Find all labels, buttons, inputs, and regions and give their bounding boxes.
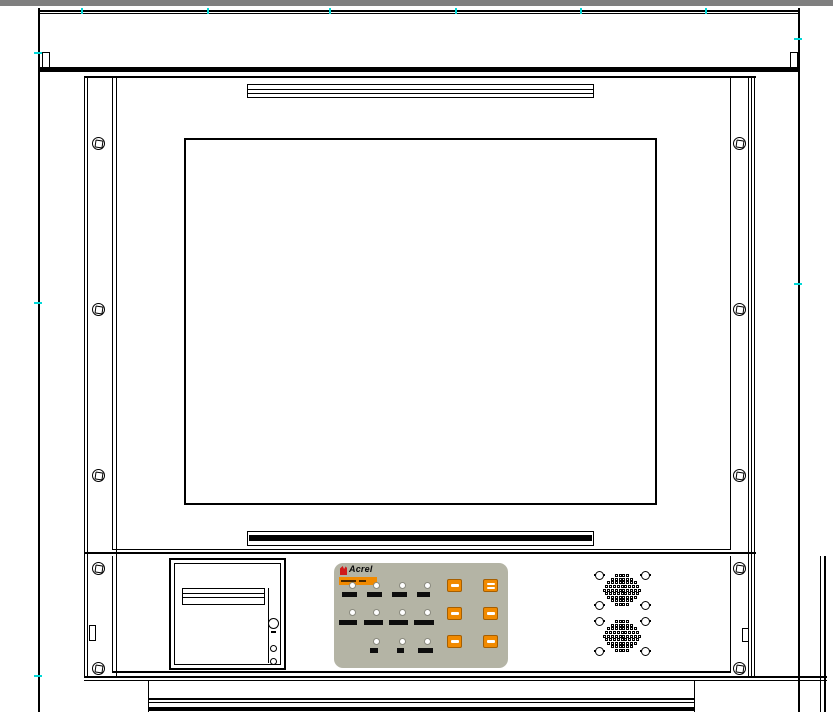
printer-frame <box>174 563 281 665</box>
label-bar <box>339 620 357 625</box>
speaker-hole <box>628 631 631 634</box>
speaker-hole <box>626 574 629 577</box>
brand-logo-text: Acrel <box>349 564 373 575</box>
speaker-hole <box>622 627 625 630</box>
speaker-hole <box>611 627 614 630</box>
speaker-hole <box>619 578 622 581</box>
speaker-hole <box>605 631 608 634</box>
frame-screw <box>92 562 105 575</box>
speaker-hole <box>611 596 614 599</box>
cad-marker-icon <box>34 52 42 54</box>
speaker-hole <box>634 642 637 645</box>
top-vent-strip <box>247 84 594 98</box>
speaker-hole <box>630 635 633 638</box>
speaker-hole <box>619 589 622 592</box>
panel-button[interactable] <box>483 579 498 592</box>
speaker-hole <box>622 620 625 623</box>
speaker-hole <box>607 596 610 599</box>
panel-button[interactable] <box>483 607 498 620</box>
button-dash-icon <box>487 612 495 615</box>
cad-marker-icon <box>34 302 42 304</box>
screen-display <box>184 138 657 505</box>
speaker-hole <box>615 581 618 584</box>
speaker-hole <box>622 635 625 638</box>
speaker-hole <box>615 642 618 645</box>
speaker-screw <box>595 601 604 610</box>
cad-marker-icon <box>580 8 582 14</box>
panel-button[interactable] <box>483 635 498 648</box>
recessed-line <box>149 707 694 711</box>
speaker-hole <box>615 645 618 648</box>
speaker-hole <box>630 627 633 630</box>
speaker-screw <box>641 601 650 610</box>
speaker-hole <box>624 592 627 595</box>
lower-panel: Acrel <box>112 556 731 673</box>
label-bar <box>418 648 433 653</box>
speaker-hole <box>622 645 625 648</box>
model-badge <box>339 577 377 585</box>
top-panel-inner-line <box>40 13 798 14</box>
frame-screw <box>92 662 105 675</box>
speaker-hole <box>617 585 620 588</box>
speaker-hole <box>613 585 616 588</box>
speaker-hole <box>630 589 633 592</box>
speaker-hole <box>626 581 629 584</box>
speaker-hole <box>611 581 614 584</box>
speaker-hole <box>624 585 627 588</box>
speaker-hole <box>605 585 608 588</box>
speaker-hole <box>632 585 635 588</box>
speaker-hole <box>634 635 637 638</box>
right-rail-tab <box>742 628 749 642</box>
printer-led <box>270 658 277 665</box>
speaker-hole <box>619 645 622 648</box>
frame-screw <box>733 662 746 675</box>
speaker-hole <box>607 581 610 584</box>
speaker-hole <box>626 645 629 648</box>
speaker-hole <box>619 635 622 638</box>
speaker-hole <box>621 631 624 634</box>
left-rail-line <box>87 78 88 678</box>
label-bar <box>389 620 408 625</box>
cad-marker-icon <box>207 8 209 14</box>
speaker-hole <box>605 638 608 641</box>
button-dash-icon <box>451 640 459 643</box>
speaker-hole <box>626 589 629 592</box>
speaker-hole <box>611 645 614 648</box>
printer <box>169 558 286 670</box>
indicator-led <box>349 609 356 616</box>
frame-screw <box>733 469 746 482</box>
bottom-band-line <box>84 676 827 678</box>
speaker-hole <box>630 624 633 627</box>
frame-screw <box>92 469 105 482</box>
cad-marker-icon <box>794 38 802 40</box>
speaker-hole <box>632 631 635 634</box>
speaker-hole <box>619 603 622 606</box>
button-dash-icon <box>451 584 459 587</box>
printer-mark <box>271 631 276 633</box>
cabinet-left-edge <box>38 8 40 712</box>
speaker-hole <box>622 603 625 606</box>
speaker-hole <box>603 589 606 592</box>
speaker-hole <box>615 589 618 592</box>
printer-paper-slot <box>182 588 265 605</box>
label-bar <box>342 592 357 597</box>
speaker-hole <box>605 592 608 595</box>
speaker-hole <box>617 592 620 595</box>
speaker-hole <box>615 578 618 581</box>
speaker-hole <box>624 631 627 634</box>
speaker-screw <box>641 647 650 656</box>
speaker-screw <box>595 617 604 626</box>
speaker-hole <box>615 627 618 630</box>
right-side-line <box>820 556 821 712</box>
speaker-hole <box>611 624 614 627</box>
top-panel-right-tab <box>790 52 798 68</box>
speaker-hole <box>621 638 624 641</box>
speaker-hole <box>626 620 629 623</box>
speaker-hole <box>619 596 622 599</box>
top-edge-strip <box>0 0 833 6</box>
speaker-hole <box>626 627 629 630</box>
speaker-hole <box>619 642 622 645</box>
speaker-hole <box>619 620 622 623</box>
bottom-vent-strip <box>247 531 594 546</box>
cad-marker-icon <box>34 675 42 677</box>
speaker-hole <box>636 592 639 595</box>
speaker-hole <box>615 599 618 602</box>
speaker-hole <box>638 635 641 638</box>
speaker-hole <box>628 592 631 595</box>
top-panel-left-tab <box>42 52 50 68</box>
cad-marker-icon <box>81 8 83 14</box>
speaker-hole <box>609 631 612 634</box>
speaker-hole <box>622 578 625 581</box>
label-bar <box>367 592 382 597</box>
label-bar <box>414 620 434 625</box>
speaker-screw <box>641 617 650 626</box>
speaker-screw <box>641 571 650 580</box>
indicator-led <box>399 638 406 645</box>
speaker-hole <box>611 635 614 638</box>
lower-recessed-panel <box>148 681 695 712</box>
speaker-hole <box>613 631 616 634</box>
speaker-hole <box>615 624 618 627</box>
indicator-led <box>424 609 431 616</box>
speaker-hole <box>622 596 625 599</box>
speaker-hole <box>619 574 622 577</box>
cad-marker-icon <box>329 8 331 14</box>
speaker-hole <box>634 596 637 599</box>
speaker-hole <box>621 592 624 595</box>
speaker-hole <box>622 589 625 592</box>
speaker-hole <box>609 592 612 595</box>
speaker-hole <box>621 585 624 588</box>
speaker-hole <box>617 631 620 634</box>
speaker-hole <box>611 589 614 592</box>
speaker-hole <box>619 581 622 584</box>
speaker-hole <box>609 638 612 641</box>
speaker-hole <box>622 624 625 627</box>
button-dash-icon <box>487 583 495 585</box>
speaker-hole <box>617 638 620 641</box>
left-rail-line <box>84 78 85 678</box>
speaker-hole <box>634 627 637 630</box>
speaker-hole <box>603 635 606 638</box>
speaker-hole <box>632 638 635 641</box>
speaker-hole <box>626 596 629 599</box>
label-bar <box>370 648 378 653</box>
speaker-hole <box>630 645 633 648</box>
speaker-hole <box>615 574 618 577</box>
speaker-hole <box>609 585 612 588</box>
speaker-hole <box>615 620 618 623</box>
speaker-hole <box>619 599 622 602</box>
speaker-hole <box>630 578 633 581</box>
speaker-screw <box>595 647 604 656</box>
right-rail-line <box>754 78 755 678</box>
speaker-hole <box>628 585 631 588</box>
label-bar <box>364 620 383 625</box>
speaker-hole <box>626 578 629 581</box>
right-rail-line <box>751 78 752 678</box>
panel-button[interactable] <box>447 579 462 592</box>
speaker-hole <box>638 589 641 592</box>
speaker-hole <box>611 642 614 645</box>
speaker-hole <box>615 635 618 638</box>
speaker-hole <box>607 589 610 592</box>
indicator-led <box>373 582 380 589</box>
button-dash-icon <box>451 612 459 615</box>
speaker-hole <box>630 642 633 645</box>
speaker-hole <box>622 581 625 584</box>
speaker-hole <box>636 631 639 634</box>
speaker-hole <box>626 624 629 627</box>
frame-screw <box>92 137 105 150</box>
frame-screw <box>92 303 105 316</box>
speaker-hole <box>622 599 625 602</box>
right-rail-line <box>748 78 749 678</box>
speaker-hole <box>613 592 616 595</box>
top-panel-upper-line <box>40 10 798 12</box>
speaker-hole <box>636 638 639 641</box>
speaker-hole <box>636 585 639 588</box>
indicator-led <box>373 609 380 616</box>
speaker-hole <box>630 581 633 584</box>
indicator-led <box>349 582 356 589</box>
speaker-hole <box>619 624 622 627</box>
button-dash-icon <box>487 587 495 589</box>
indicator-led <box>399 582 406 589</box>
cabinet-right-edge <box>798 8 800 712</box>
speaker-hole <box>624 638 627 641</box>
speaker-hole <box>607 635 610 638</box>
speaker-hole <box>622 649 625 652</box>
cad-marker-icon <box>455 8 457 14</box>
printer-led <box>270 645 277 652</box>
cad-marker-icon <box>705 8 707 14</box>
frame-screw <box>733 562 746 575</box>
indicator-led <box>424 582 431 589</box>
speaker-hole <box>615 596 618 599</box>
top-panel-lower-bar <box>40 67 798 72</box>
speaker-hole <box>626 603 629 606</box>
speaker-hole <box>628 638 631 641</box>
indicator-led <box>399 609 406 616</box>
speaker-hole <box>619 627 622 630</box>
speaker-hole <box>626 642 629 645</box>
recessed-line <box>149 698 694 700</box>
speaker-hole <box>626 599 629 602</box>
speaker-hole <box>632 592 635 595</box>
right-side-line <box>824 556 826 712</box>
speaker-hole <box>611 599 614 602</box>
frame-screw <box>733 303 746 316</box>
panel-button[interactable] <box>447 607 462 620</box>
brand-logo-icon <box>340 566 347 575</box>
monitor-panel-bottom-line <box>112 549 731 550</box>
monitor-panel <box>112 77 731 549</box>
speaker-hole <box>607 642 610 645</box>
speaker-hole <box>626 635 629 638</box>
section-divider-line <box>84 552 756 554</box>
speaker-screw <box>595 571 604 580</box>
label-bar <box>397 648 404 653</box>
speaker-hole <box>634 589 637 592</box>
speaker-hole <box>630 596 633 599</box>
indicator-led <box>373 638 380 645</box>
speaker-hole <box>634 581 637 584</box>
speaker-hole <box>630 599 633 602</box>
indicator-led <box>424 638 431 645</box>
speaker-hole <box>615 603 618 606</box>
speaker-hole <box>613 638 616 641</box>
label-bar <box>392 592 407 597</box>
cad-marker-icon <box>794 283 802 285</box>
printer-feed-knob[interactable] <box>268 618 279 629</box>
speaker-hole <box>622 574 625 577</box>
button-dash-icon <box>487 640 495 643</box>
speaker-hole <box>611 578 614 581</box>
speaker-hole <box>626 649 629 652</box>
cabinet-front-drawing: Acrel <box>0 0 833 712</box>
left-rail-tab <box>89 625 96 641</box>
recessed-line <box>149 702 694 703</box>
speaker-hole <box>615 649 618 652</box>
speaker-hole <box>622 642 625 645</box>
speaker-hole <box>607 627 610 630</box>
label-bar <box>417 592 430 597</box>
panel-button[interactable] <box>447 635 462 648</box>
acrel-control-panel: Acrel <box>334 563 508 668</box>
frame-screw <box>733 137 746 150</box>
speaker-hole <box>619 649 622 652</box>
